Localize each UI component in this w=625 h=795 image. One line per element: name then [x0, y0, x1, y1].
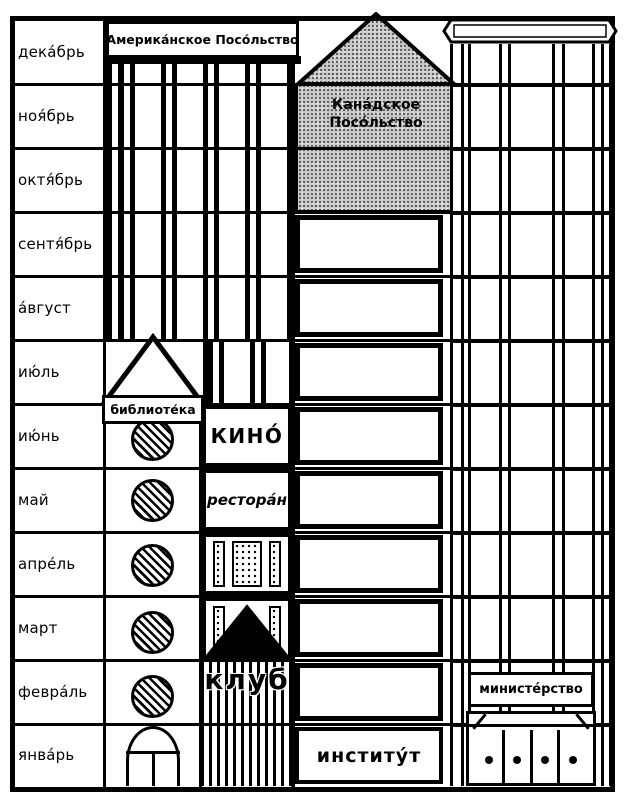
- institute-floor: [295, 215, 443, 273]
- month-label-october: октя́брь: [18, 148, 102, 212]
- month-label-december: дека́брь: [18, 21, 102, 83]
- lintel-miter: [575, 713, 590, 729]
- institute-floor: [295, 599, 443, 657]
- dotted-pilaster-wide: [232, 541, 262, 587]
- ministry-entrance: [466, 711, 596, 786]
- month-label-march: март: [18, 596, 102, 660]
- institute-floor: [295, 663, 443, 721]
- ministry-door-panels: [477, 730, 585, 783]
- ministry-sign: министе́рство: [468, 672, 594, 707]
- library-round-window: [131, 479, 174, 522]
- institute-floor: [295, 279, 443, 337]
- institute-floor: [295, 471, 443, 529]
- door-panel: [477, 730, 505, 783]
- club-sign: клуб: [201, 663, 293, 696]
- lintel-miter: [472, 713, 487, 729]
- door-handle-dot: [541, 756, 549, 764]
- textbook-illustration: Кана́дское Посо́льство дека́брь ноя́брь …: [0, 0, 625, 795]
- door-handle-dot: [513, 756, 521, 764]
- door-panel: [533, 730, 561, 783]
- door-handle-dot: [569, 756, 577, 764]
- month-label-july: ию́ль: [18, 340, 102, 404]
- canadian-embassy-roof-outline: [295, 12, 457, 86]
- institute-floor: [295, 407, 443, 465]
- club-pediment-box: [201, 596, 293, 660]
- ministry-entrance-lintel: [469, 714, 593, 727]
- library-round-window: [131, 675, 174, 718]
- month-label-may: май: [18, 468, 102, 532]
- ministry-cornice: [441, 17, 619, 45]
- door-panel: [505, 730, 533, 783]
- month-label-january: янва́рь: [18, 724, 102, 785]
- institute-floor: [295, 535, 443, 593]
- month-label-april: апре́ль: [18, 532, 102, 596]
- dotted-pilaster: [269, 541, 281, 587]
- dotted-pilaster: [213, 541, 225, 587]
- institute-sign: институ́т: [295, 727, 443, 784]
- door-panel: [560, 730, 585, 783]
- library-round-window: [131, 611, 174, 654]
- american-embassy-sign: Америка́нское Посо́льство: [106, 21, 299, 58]
- restaurant-box: рестора́н: [201, 468, 293, 532]
- month-label-february: февра́ль: [18, 660, 102, 724]
- library-sign: библиоте́ка: [102, 395, 204, 424]
- library-round-window: [131, 418, 174, 461]
- month-label-september: сентя́брь: [18, 212, 102, 276]
- month-label-november: ноя́брь: [18, 84, 102, 148]
- library-round-window: [131, 544, 174, 587]
- cinema-box: КИНО́: [201, 404, 293, 468]
- library-door-divider: [152, 752, 155, 786]
- door-handle-dot: [485, 756, 493, 764]
- decorated-facade-box: [201, 532, 293, 596]
- month-label-june: ию́нь: [18, 404, 102, 468]
- institute-floor: [295, 343, 443, 401]
- month-label-august: а́вгуст: [18, 276, 102, 340]
